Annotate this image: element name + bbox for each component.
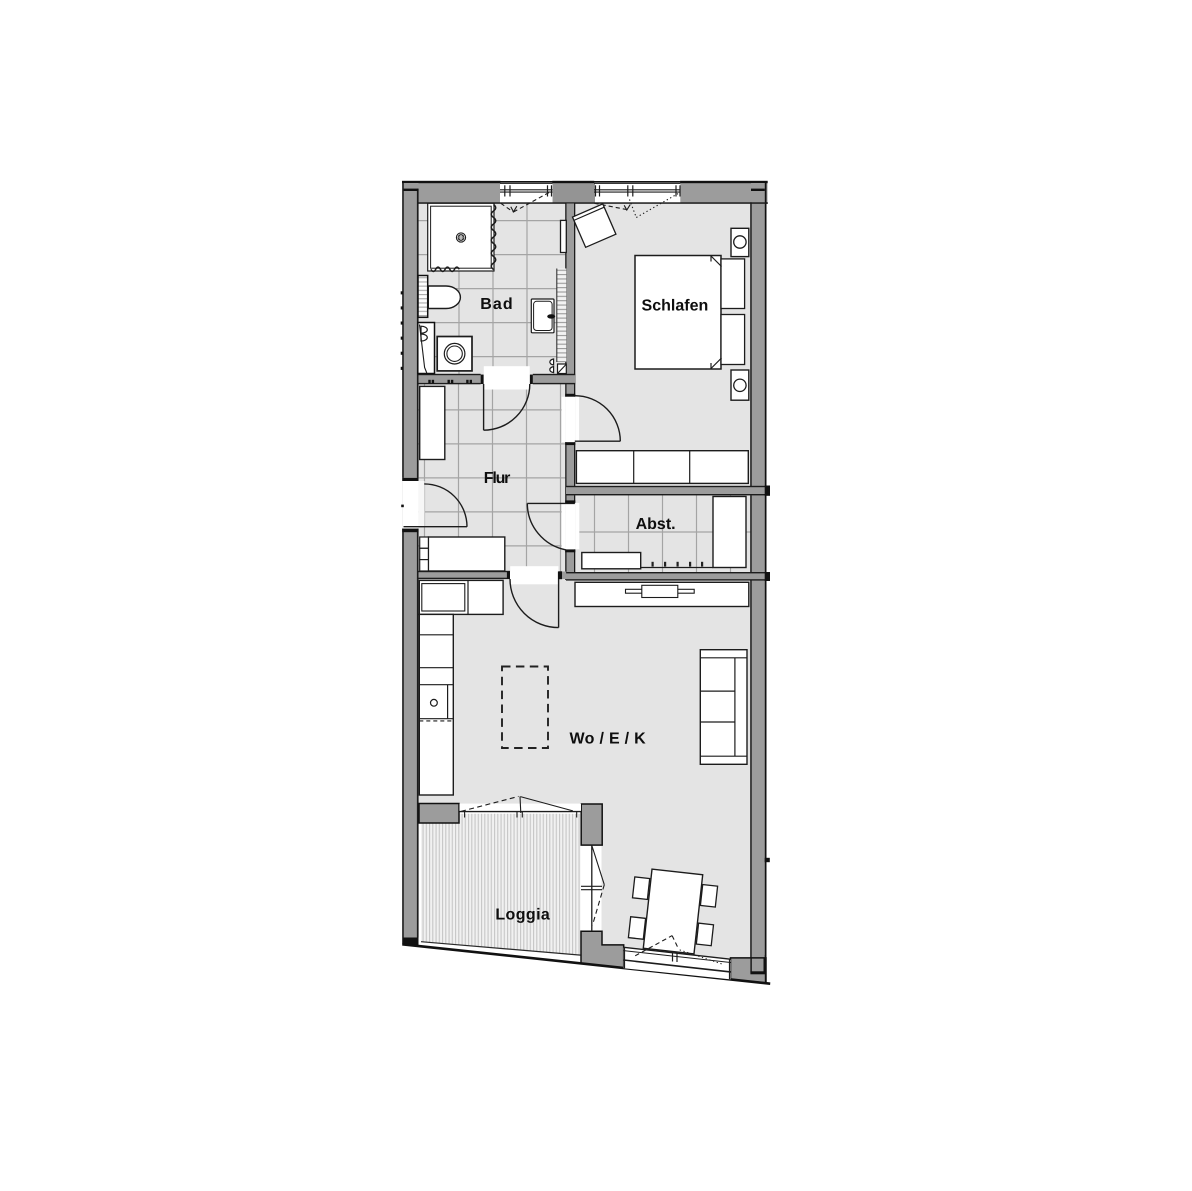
svg-text:Abst.: Abst.: [636, 516, 676, 533]
svg-text:Loggia: Loggia: [495, 906, 550, 923]
svg-text:Flur: Flur: [484, 470, 510, 487]
svg-text:Schlafen: Schlafen: [642, 298, 709, 315]
svg-text:Wo / E / K: Wo / E / K: [570, 731, 647, 748]
svg-text:Bad: Bad: [480, 296, 514, 313]
